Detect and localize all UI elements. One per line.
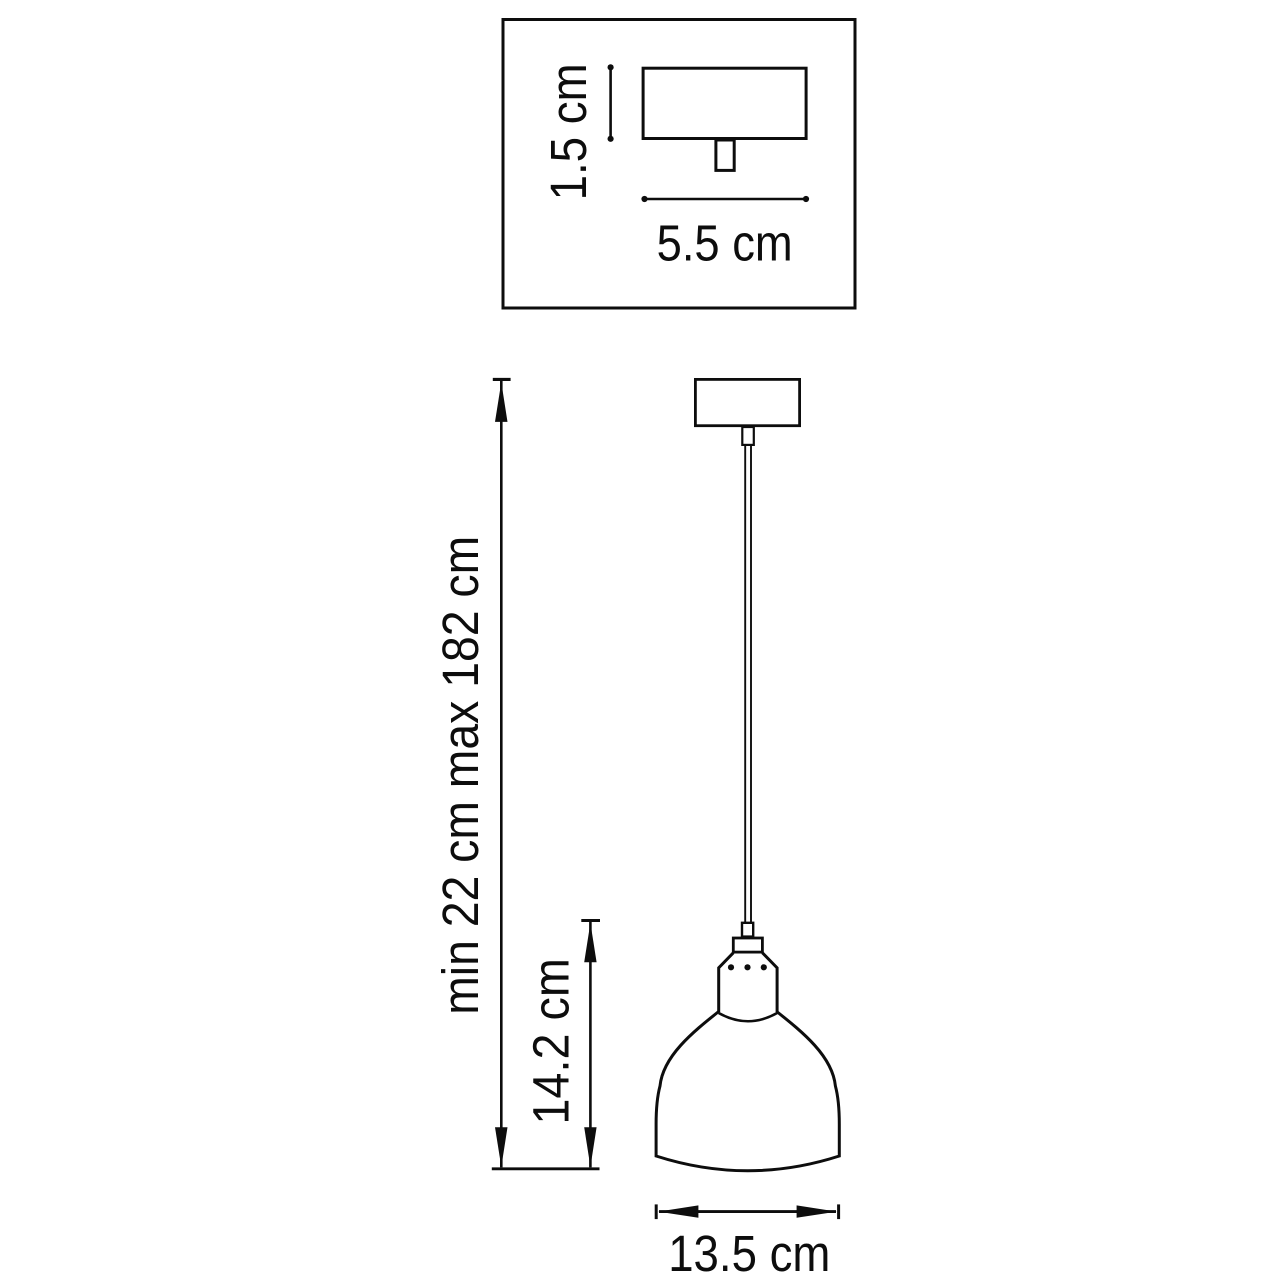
svg-text:5.5 cm: 5.5 cm bbox=[657, 215, 793, 272]
svg-text:min 22 cm max 182 cm: min 22 cm max 182 cm bbox=[432, 536, 489, 1015]
svg-text:14.2 cm: 14.2 cm bbox=[523, 958, 580, 1125]
svg-text:1.5 cm: 1.5 cm bbox=[540, 63, 597, 200]
svg-text:13.5 cm: 13.5 cm bbox=[668, 1225, 830, 1280]
